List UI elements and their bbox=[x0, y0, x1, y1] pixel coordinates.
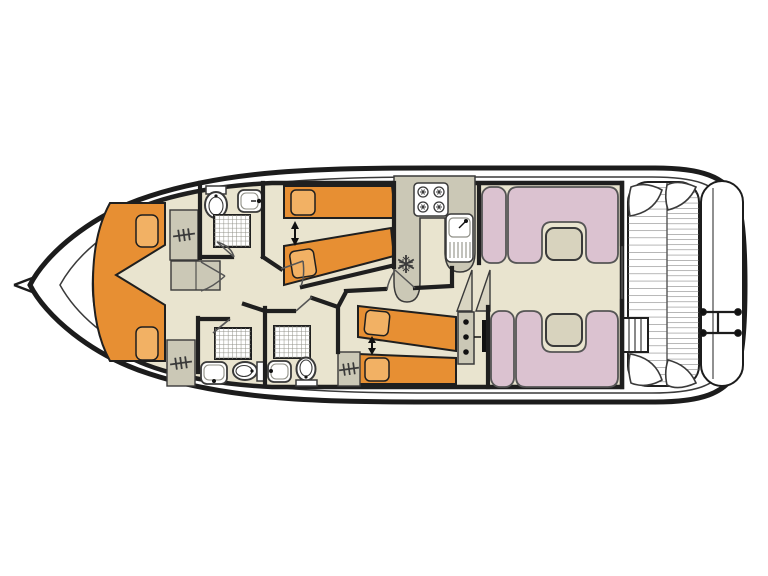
sofa-arm bbox=[491, 311, 514, 387]
deck-steps-icon bbox=[622, 318, 648, 352]
deck-planks bbox=[667, 183, 699, 386]
dinette-table bbox=[546, 314, 582, 346]
shower-icon bbox=[215, 328, 251, 359]
pillow bbox=[291, 190, 315, 215]
sink-icon bbox=[268, 361, 291, 382]
galley-sink-icon bbox=[446, 214, 473, 262]
dinette-table bbox=[546, 228, 582, 260]
stove-burners-icon bbox=[414, 183, 448, 216]
boat-floor-plan bbox=[0, 0, 768, 576]
toilet-icon bbox=[296, 358, 317, 387]
sink-icon bbox=[201, 362, 227, 384]
swim-platform bbox=[700, 181, 743, 386]
sofa-arm bbox=[482, 187, 506, 263]
pillow bbox=[136, 215, 158, 247]
aft-deck bbox=[622, 182, 699, 388]
boat-floor-plan-page bbox=[0, 0, 768, 576]
toilet-icon bbox=[205, 186, 227, 218]
platform-edge bbox=[701, 181, 743, 386]
pillow bbox=[136, 327, 158, 360]
pillow bbox=[364, 310, 390, 336]
sink-icon bbox=[238, 190, 262, 212]
shower-icon bbox=[274, 326, 310, 358]
toilet-icon bbox=[233, 362, 264, 381]
pillow bbox=[365, 358, 389, 381]
